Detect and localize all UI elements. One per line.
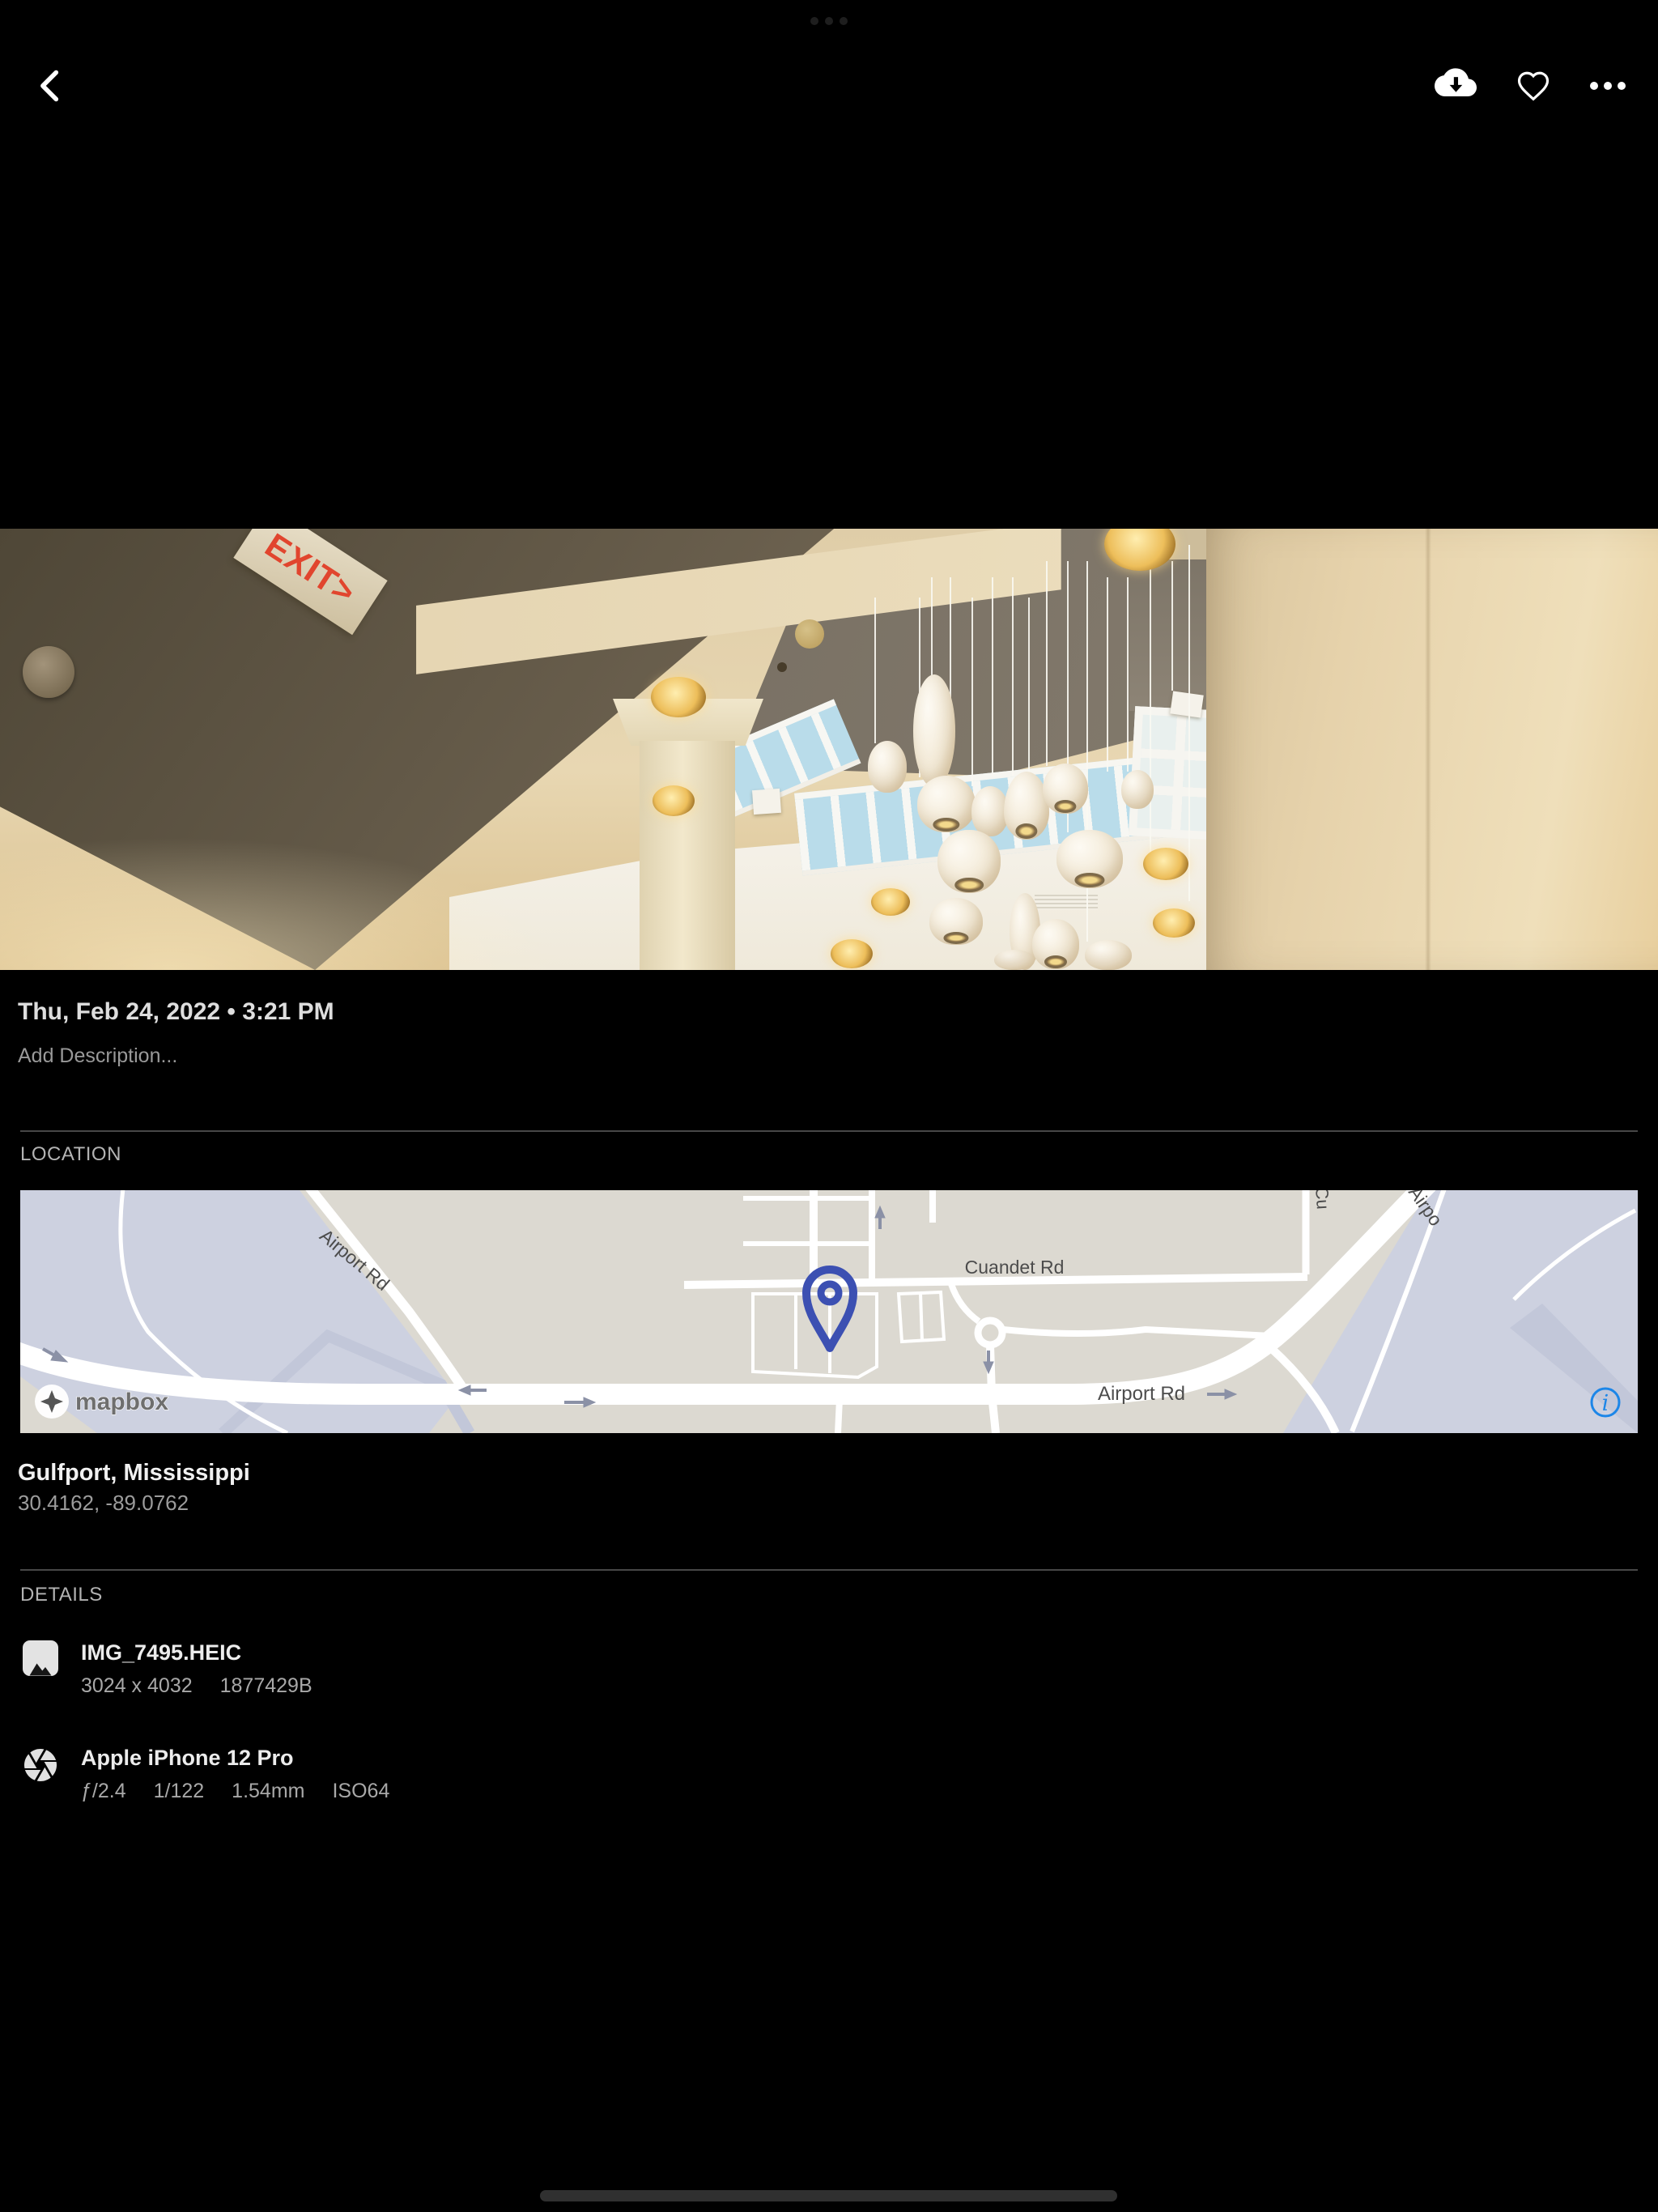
map-label-cross-clipped: Cu	[1312, 1190, 1333, 1210]
photo-pendant-lamp	[1121, 770, 1154, 809]
camera-iso: ISO64	[332, 1780, 389, 1802]
photo-detail-screen: EXIT> Thu, Feb 24, 2022 • 3:21 PM Add De…	[0, 0, 1658, 2212]
indicator-dot	[810, 17, 818, 25]
photo-pendant-lamp	[929, 898, 983, 945]
photo-speaker	[752, 789, 781, 815]
camera-focal-length: 1.54mm	[232, 1780, 304, 1802]
back-button[interactable]	[29, 65, 71, 107]
camera-shutter: 1/122	[154, 1780, 205, 1802]
photo-pendant-lamp	[868, 741, 907, 793]
map-label-airport: Airport Rd	[1098, 1383, 1185, 1405]
photo-column	[640, 741, 735, 970]
multitask-indicator[interactable]	[810, 17, 848, 25]
photo-downlight	[831, 939, 873, 968]
mapbox-wordmark: mapbox	[75, 1389, 168, 1415]
file-dimensions: 3024 x 4032	[81, 1674, 193, 1697]
photo-light-glow	[0, 836, 567, 970]
photo-downlight	[1153, 908, 1195, 938]
file-meta: 3024 x 40321877429B	[81, 1674, 340, 1698]
description-field[interactable]: Add Description...	[18, 1044, 177, 1068]
back-chevron-icon	[34, 68, 66, 104]
photo-pendant-lamp	[913, 674, 955, 788]
camera-name: Apple iPhone 12 Pro	[81, 1746, 294, 1771]
map-roundabout	[978, 1321, 1002, 1345]
photo-pendant-lamp	[1032, 919, 1079, 969]
map-label-cuandet: Cuandet Rd	[965, 1257, 1065, 1278]
location-map[interactable]: Cuandet Rd Airport Rd Airport Rd Airpo C…	[20, 1190, 1638, 1433]
camera-meta: ƒ/2.41/1221.54mmISO64	[81, 1780, 417, 1803]
photo-downlight	[651, 677, 706, 717]
divider	[20, 1569, 1638, 1571]
cloud-download-icon	[1435, 68, 1477, 104]
heart-icon	[1516, 69, 1550, 103]
photo-downlight	[1143, 848, 1188, 880]
photo-ceiling-speaker	[795, 619, 824, 649]
photo-pendant-lamp	[1043, 764, 1088, 814]
photo-vent	[1035, 895, 1098, 909]
details-section-label: DETAILS	[20, 1584, 103, 1606]
photo-smoke-detector	[23, 646, 74, 698]
photo-wall-crease	[1425, 529, 1431, 970]
photo-downlight	[653, 785, 695, 816]
photo-speaker	[1170, 691, 1204, 717]
mountains-icon	[26, 1658, 55, 1676]
mapbox-logo[interactable]: mapbox	[35, 1385, 168, 1419]
photo-image[interactable]: EXIT>	[0, 529, 1658, 970]
download-button[interactable]	[1433, 66, 1478, 105]
file-size: 1877429B	[220, 1674, 312, 1697]
location-section-label: LOCATION	[20, 1143, 121, 1166]
photo-pendant-lamp	[937, 830, 1001, 893]
indicator-dot	[825, 17, 833, 25]
location-place: Gulfport, Mississippi	[18, 1460, 250, 1487]
camera-aperture: ƒ/2.4	[81, 1780, 126, 1802]
svg-text:i: i	[1602, 1391, 1609, 1416]
image-file-icon	[23, 1640, 58, 1676]
photo-pendant-lamp	[1056, 830, 1123, 888]
ellipsis-icon	[1588, 80, 1627, 91]
camera-aperture-icon	[19, 1744, 62, 1786]
photo-sprinkler	[777, 662, 787, 672]
favorite-button[interactable]	[1516, 68, 1551, 104]
photo-right-wall	[1206, 529, 1658, 970]
location-coordinates: 30.4162, -89.0762	[18, 1491, 189, 1516]
photo-pendant-lamp	[917, 776, 976, 832]
file-name: IMG_7495.HEIC	[81, 1640, 241, 1665]
more-button[interactable]	[1585, 74, 1630, 97]
photo-pendant-lamp	[994, 950, 1035, 970]
photo-downlight	[871, 888, 910, 916]
divider	[20, 1130, 1638, 1132]
photo-pendant-lamp	[1085, 940, 1132, 970]
indicator-dot	[840, 17, 848, 25]
photo-datetime: Thu, Feb 24, 2022 • 3:21 PM	[18, 998, 334, 1026]
home-indicator[interactable]	[540, 2190, 1117, 2201]
